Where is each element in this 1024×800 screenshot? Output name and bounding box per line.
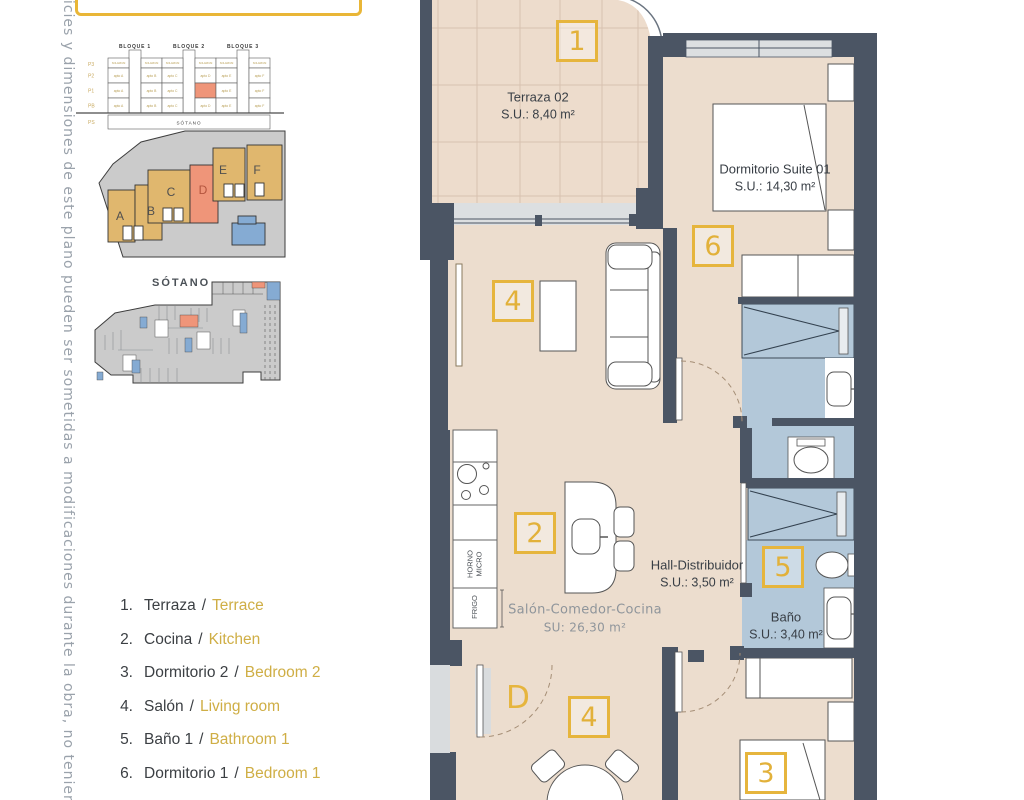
- hall-label: Hall-Distribuidor S.U.: 3,50 m²: [651, 558, 743, 591]
- bloque1-label: BLOQUE 1: [119, 44, 151, 50]
- bloque2-label: BLOQUE 2: [173, 44, 205, 50]
- bloque3-label: BLOQUE 3: [227, 44, 259, 50]
- floorplan-sheet: ficies y dimensiones de este plano puede…: [0, 0, 1024, 800]
- suite-label: Dormitorio Suite 01 S.U.: 14,30 m²: [719, 162, 830, 195]
- terrace-label: Terraza 02 S.U.: 8,40 m²: [501, 90, 575, 123]
- legend-item-2: 2.Cocina/Kitchen: [107, 632, 321, 648]
- svg-text:apto A: apto A: [114, 74, 124, 78]
- marker-suite: 6: [692, 225, 734, 267]
- entry-door-label: D: [506, 680, 530, 716]
- svg-text:apto D: apto D: [201, 74, 212, 78]
- svg-text:SOLARIUM: SOLARIUM: [166, 61, 180, 65]
- svg-text:apto A: apto A: [114, 89, 124, 93]
- floor-label-ps: PS: [88, 120, 95, 126]
- bathroom-label: Baño S.U.: 3,40 m²: [749, 610, 823, 643]
- suite-window: [686, 40, 832, 57]
- apartment-plan: Terraza 02 S.U.: 8,40 m² Dormitorio Suit…: [420, 0, 880, 800]
- floor-label-p3: P3: [88, 62, 94, 68]
- svg-text:SOLARIUM: SOLARIUM: [199, 61, 213, 65]
- legend-item-1: 1.Terraza/Terrace: [107, 598, 321, 614]
- site-letter-e: E: [219, 163, 227, 177]
- svg-text:apto F: apto F: [255, 104, 265, 108]
- fridge-label: FRIGO: [471, 595, 480, 619]
- legend-item-6: 6.Dormitorio 1/Bedroom 1: [107, 766, 321, 782]
- svg-text:apto B: apto B: [147, 89, 158, 93]
- floor-label-p2: P2: [88, 74, 94, 80]
- svg-text:apto C: apto C: [168, 74, 179, 78]
- svg-text:apto F: apto F: [255, 89, 265, 93]
- floor-label-pb: PB: [88, 104, 95, 110]
- oven-micro-label: HORNO MICRO: [467, 550, 484, 578]
- marker-bath: 5: [762, 546, 804, 588]
- site-letter-c: C: [167, 185, 176, 199]
- svg-text:apto E: apto E: [222, 104, 233, 108]
- svg-text:apto C: apto C: [168, 89, 179, 93]
- svg-text:apto D: apto D: [201, 104, 212, 108]
- svg-text:apto C: apto C: [168, 104, 179, 108]
- marker-kitchen: 2: [514, 512, 556, 554]
- elevation-basement-row-label: SÓTANO: [176, 120, 201, 126]
- svg-text:apto B: apto B: [147, 104, 158, 108]
- block-elevation-diagram: BLOQUE 1 BLOQUE 2 BLOQUE 3 P3 P2 P1 PB P…: [86, 42, 286, 138]
- living-kitchen-label: Salón-Comedor-Cocina SU: 26,30 m²: [508, 603, 662, 636]
- legend-item-5: 5.Baño 1/Bathroom 1: [107, 732, 321, 748]
- marker-dining: 4: [568, 696, 610, 738]
- legend-item-3: 3.Dormitorio 2/Bedroom 2: [107, 665, 321, 681]
- svg-text:apto A: apto A: [114, 104, 124, 108]
- marker-bedroom2: 3: [745, 752, 787, 794]
- svg-text:SOLARIUM: SOLARIUM: [253, 61, 267, 65]
- basement-plan: [93, 280, 288, 390]
- marker-living: 4: [492, 280, 534, 322]
- svg-text:apto F: apto F: [255, 74, 265, 78]
- svg-text:apto E: apto E: [222, 89, 233, 93]
- windows: [432, 203, 637, 226]
- svg-text:SOLARIUM: SOLARIUM: [145, 61, 159, 65]
- svg-text:apto E: apto E: [222, 74, 233, 78]
- site-letter-b: B: [147, 204, 155, 218]
- title-box-outline: [75, 0, 362, 16]
- svg-text:apto B: apto B: [147, 74, 158, 78]
- site-plan: A B C D E F: [95, 128, 291, 263]
- site-letter-d: D: [199, 183, 208, 197]
- site-letter-f: F: [253, 163, 260, 177]
- marker-terrace: 1: [556, 20, 598, 62]
- floor-label-p1: P1: [88, 89, 94, 95]
- svg-text:SOLARIUM: SOLARIUM: [112, 61, 126, 65]
- margin-disclaimer-text: ficies y dimensiones de este plano puede…: [60, 0, 76, 800]
- legend-item-4: 4.Salón/Living room: [107, 699, 321, 715]
- site-letter-a: A: [116, 209, 124, 223]
- svg-text:SOLARIUM: SOLARIUM: [220, 61, 234, 65]
- room-legend: 1.Terraza/Terrace 2.Cocina/Kitchen 3.Dor…: [107, 598, 321, 799]
